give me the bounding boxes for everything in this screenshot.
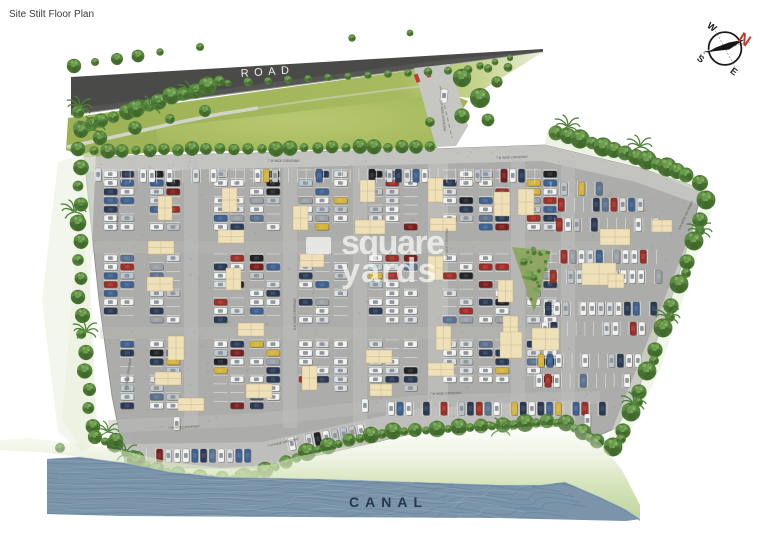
svg-text:Site Stilt Floor Plan: Site Stilt Floor Plan bbox=[9, 9, 94, 20]
svg-text:yards: yards bbox=[341, 252, 438, 290]
svg-text:6 M WIDE DRIVEWAY: 6 M WIDE DRIVEWAY bbox=[293, 297, 297, 330]
svg-text:6 M WIDE DRIVEWAY: 6 M WIDE DRIVEWAY bbox=[445, 227, 449, 260]
svg-text:7 M WIDE DRIVEWAY: 7 M WIDE DRIVEWAY bbox=[268, 159, 301, 163]
svg-text:CANAL: CANAL bbox=[349, 494, 428, 510]
